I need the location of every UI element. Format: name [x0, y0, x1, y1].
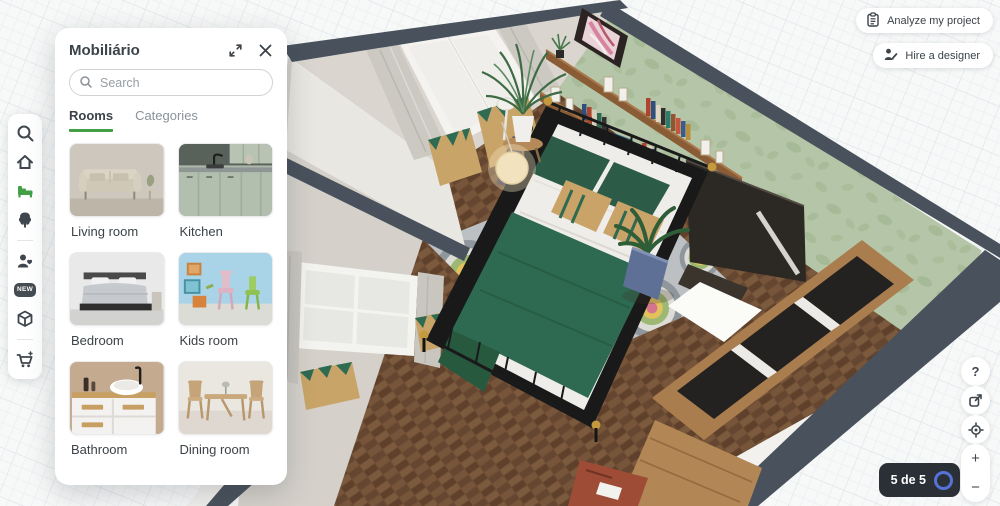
analyze-project-label: Analyze my project — [887, 15, 980, 27]
furniture-panel: Mobiliário Rooms Categories — [55, 28, 287, 485]
room-thumbnail-kids — [178, 252, 274, 326]
status-badge[interactable]: 5 de 5 — [879, 463, 960, 497]
new-items-icon[interactable]: NEW — [15, 280, 35, 300]
search-input[interactable] — [69, 69, 273, 96]
toolbar-sidebar: NEW — [8, 114, 42, 379]
room-card-label: Kids room — [180, 333, 274, 348]
room-card-label: Dining room — [180, 442, 274, 457]
room-thumbnail-bedroom — [69, 252, 165, 326]
expand-icon[interactable] — [227, 43, 243, 59]
search-tool-icon[interactable] — [15, 123, 35, 143]
room-thumbnail-living — [69, 143, 165, 217]
new-badge-label: NEW — [14, 283, 36, 298]
objects-tool-icon[interactable] — [15, 309, 35, 329]
furniture-tool-icon[interactable] — [15, 181, 35, 201]
panel-header: Mobiliário — [69, 42, 273, 59]
zoom-controls: + − — [961, 444, 990, 502]
sidebar-divider — [17, 240, 33, 241]
analyze-project-button[interactable]: Analyze my project — [856, 8, 993, 33]
room-card-label: Living room — [71, 224, 165, 239]
hire-designer-label: Hire a designer — [905, 50, 980, 62]
room-card-label: Bedroom — [71, 333, 165, 348]
room-card-label: Bathroom — [71, 442, 165, 457]
room-thumbnail-bathroom — [69, 361, 165, 435]
designer-icon — [883, 47, 898, 65]
room-thumbnail-dining — [178, 361, 274, 435]
tab-categories[interactable]: Categories — [135, 108, 198, 132]
search-box — [69, 69, 273, 96]
help-icon: ? — [972, 364, 980, 379]
home-tool-icon[interactable] — [15, 152, 35, 172]
help-button[interactable]: ? — [961, 357, 990, 386]
sidebar-divider — [17, 339, 33, 340]
app-window: NEW Mobiliário Rooms Cate — [0, 0, 1000, 506]
room-card-dining[interactable]: Dining room — [178, 361, 274, 461]
zoom-out-button[interactable]: − — [961, 473, 990, 502]
people-tool-icon[interactable] — [15, 251, 35, 271]
share-icon — [967, 392, 984, 409]
panel-title: Mobiliário — [69, 42, 213, 59]
search-icon — [79, 75, 93, 94]
top-actions: Analyze my project Hire a designer — [856, 8, 993, 68]
window-left[interactable] — [294, 262, 418, 356]
close-icon[interactable] — [257, 43, 273, 59]
clipboard-icon — [866, 12, 880, 30]
progress-ring-icon — [934, 471, 953, 490]
zoom-in-button[interactable]: + — [961, 444, 990, 473]
panel-tabs: Rooms Categories — [69, 108, 273, 132]
target-icon — [967, 421, 985, 439]
room-card-label: Kitchen — [180, 224, 274, 239]
room-card-bathroom[interactable]: Bathroom — [69, 361, 165, 461]
share-button[interactable] — [961, 386, 990, 415]
room-card-bedroom[interactable]: Bedroom — [69, 252, 165, 352]
room-card-living[interactable]: Living room — [69, 143, 165, 243]
tab-rooms[interactable]: Rooms — [69, 108, 113, 132]
room-card-kids[interactable]: Kids room — [178, 252, 274, 352]
cart-tool-icon[interactable] — [15, 350, 35, 370]
room-thumbnail-kitchen — [178, 143, 274, 217]
hire-designer-button[interactable]: Hire a designer — [873, 43, 993, 68]
recenter-button[interactable] — [961, 415, 990, 444]
room-card-kitchen[interactable]: Kitchen — [178, 143, 274, 243]
status-badge-label: 5 de 5 — [891, 473, 926, 487]
room-cards-grid: Living room — [69, 143, 273, 461]
plants-tool-icon[interactable] — [15, 210, 35, 230]
